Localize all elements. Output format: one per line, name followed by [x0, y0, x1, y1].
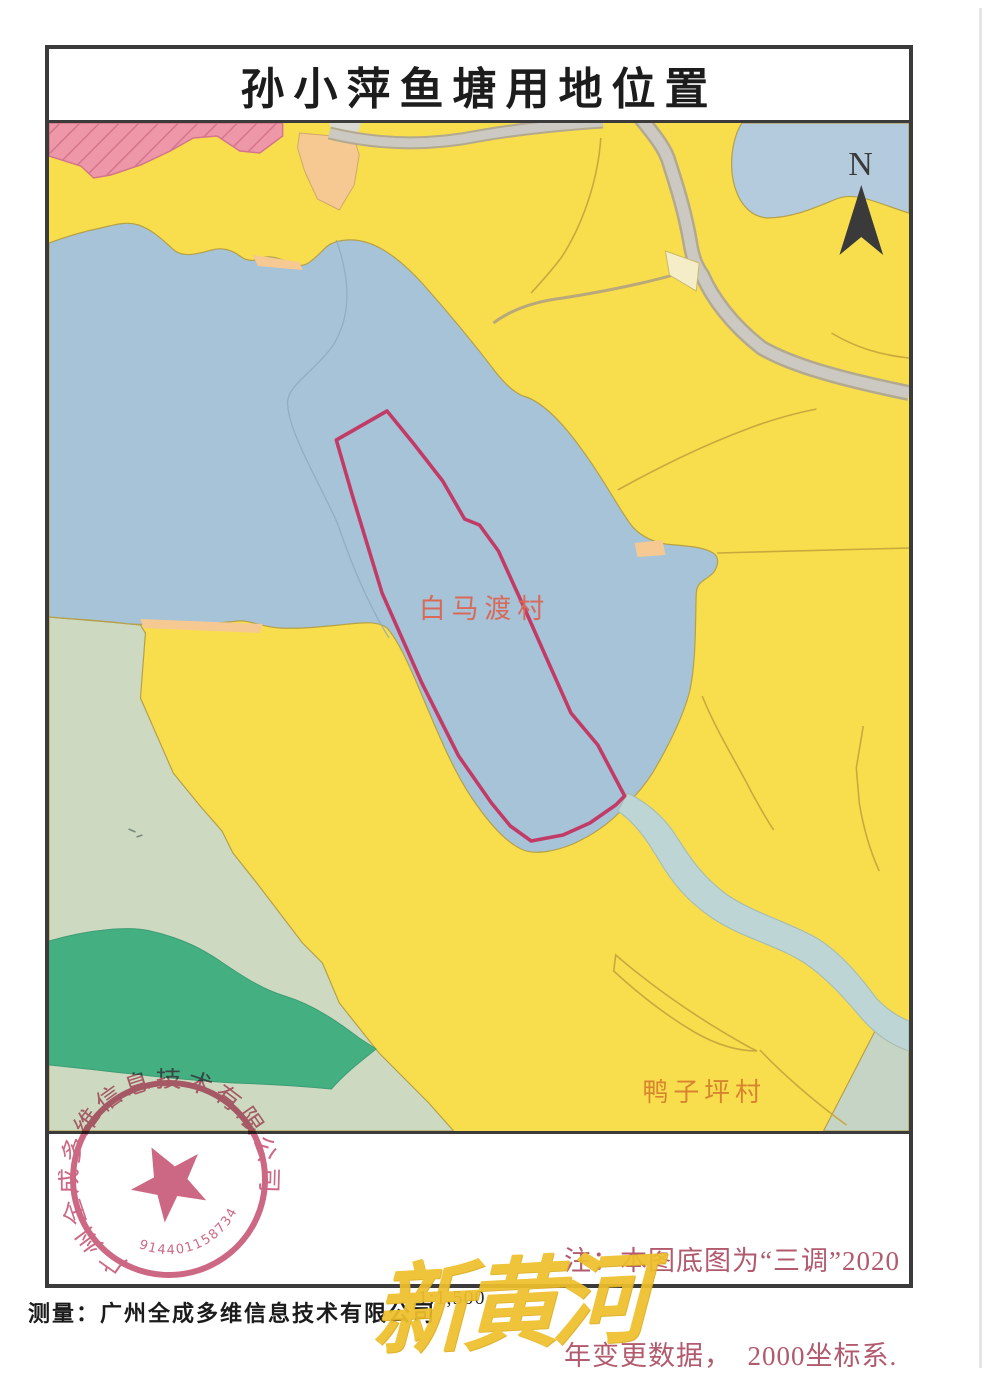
document-page: 孙小萍鱼塘用地位置 [0, 0, 1000, 1376]
company-stamp: 广州全成多维信息技术有限公司 914401158734874746 [58, 1068, 280, 1290]
page-edge-shadow [979, 8, 982, 1368]
watermark: 新黄河 [371, 1219, 643, 1375]
land-use-map: 白马渡村 鸭子坪村 N [49, 123, 909, 1131]
village-label-baimadu: 白马渡村 [419, 594, 550, 624]
village-label-yaziping: 鸭子坪村 [643, 1078, 766, 1107]
peach-sliver-right [635, 540, 666, 557]
north-arrow-label: N [848, 146, 872, 183]
stamp-graphic: 广州全成多维信息技术有限公司 914401158734874746 [58, 1068, 280, 1290]
region-corner-water [732, 123, 909, 218]
star-icon [118, 1130, 219, 1230]
title-band: 孙小萍鱼塘用地位置 [49, 49, 909, 123]
map-area: 白马渡村 鸭子坪村 N [49, 123, 909, 1134]
page-title: 孙小萍鱼塘用地位置 [241, 53, 718, 117]
